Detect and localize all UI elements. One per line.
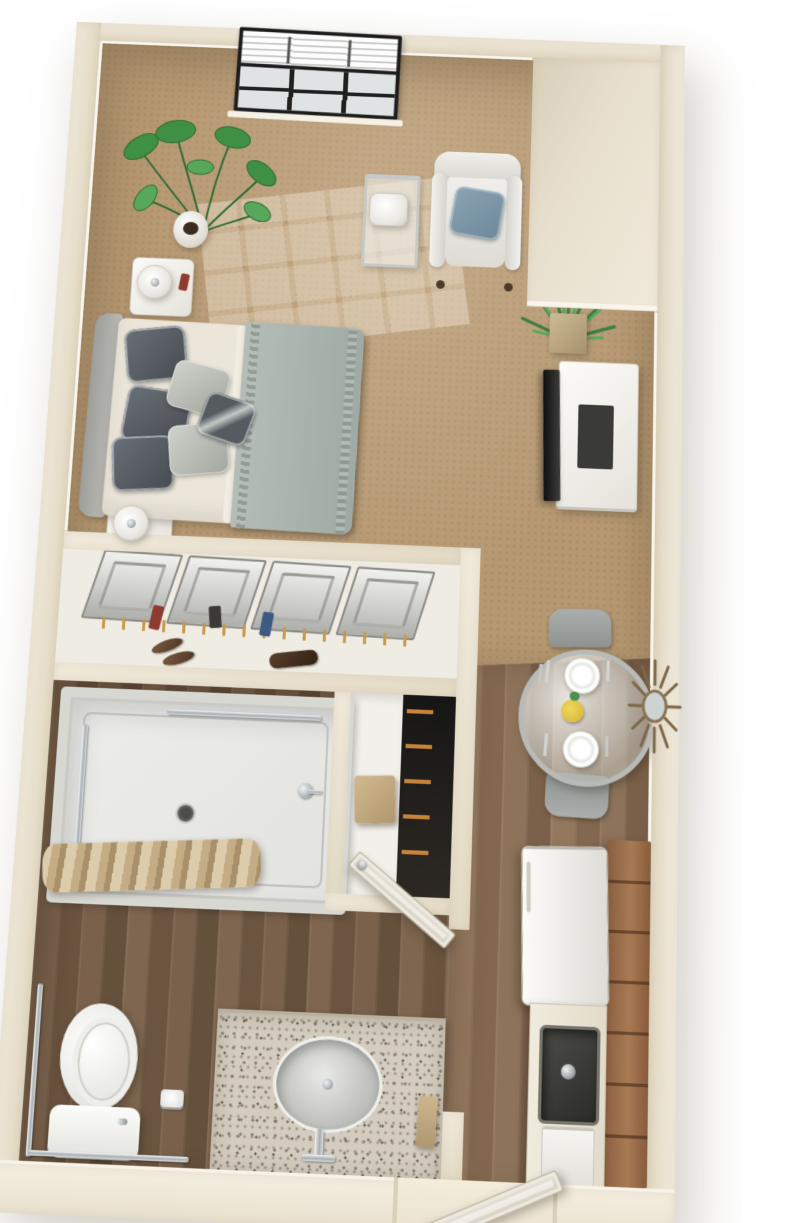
tv-mount-shelf: [577, 404, 614, 469]
yucca-planter: [549, 313, 587, 354]
vanity-faucet-handles: [301, 1154, 335, 1162]
tv-console: [556, 361, 640, 513]
shower-arm: [308, 789, 322, 794]
armchair-leg-left: [436, 280, 445, 289]
toilet-paper-holder: [160, 1089, 184, 1108]
window: [233, 27, 402, 120]
refrigerator: [521, 846, 609, 1007]
kitchen-sink: [538, 1025, 601, 1126]
bathroom-door-handle: [356, 858, 369, 871]
pot-soil: [183, 222, 199, 236]
screenshot-canvas: [0, 0, 798, 1223]
kitchen-tall-cabinets: [602, 840, 651, 1189]
window-blinds: [241, 31, 398, 72]
floor-plan: [0, 22, 685, 1223]
shower-curtain: [42, 838, 261, 893]
cutlery-knife-bottom: [605, 736, 608, 757]
sunburst-mirror-icon: [625, 649, 683, 764]
armchair-blue-pillow: [448, 185, 506, 241]
wall-block-top-right: [527, 58, 660, 312]
pillow-dark-3: [112, 435, 174, 492]
toilet: [46, 1002, 147, 1166]
vanity-granite-counter: [209, 1009, 446, 1183]
accent-lamp: [369, 192, 409, 227]
toilet-flush-button: [117, 1118, 128, 1125]
refrigerator-handle: [527, 861, 531, 912]
folded-towel: [354, 775, 396, 823]
hanging-clothes-dark: [209, 606, 222, 629]
centerpiece-greenery: [570, 691, 580, 701]
cutlery-knife-top: [606, 661, 609, 681]
window-panes: [238, 66, 396, 116]
linen-closet-interior: [396, 695, 456, 899]
bed: [77, 307, 367, 541]
wall-divider-lower: [441, 1111, 464, 1180]
sink-drain: [322, 1079, 333, 1090]
vanity-sink: [271, 1034, 385, 1136]
kitchen-faucet: [561, 1064, 576, 1080]
dining-chair-top: [549, 609, 612, 648]
linen-hanger-rods: [400, 705, 433, 887]
flat-screen-tv: [543, 370, 560, 502]
